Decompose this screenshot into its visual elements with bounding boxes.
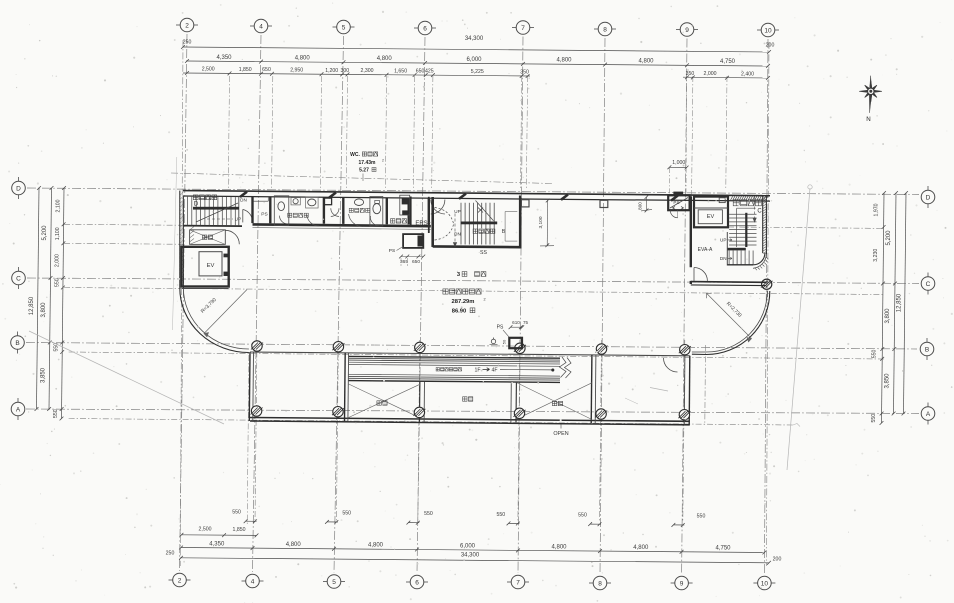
svg-text:5,225: 5,225 xyxy=(471,69,484,75)
svg-text:550: 550 xyxy=(496,512,505,518)
svg-text:B: B xyxy=(925,346,929,353)
svg-text:2: 2 xyxy=(178,577,182,584)
svg-text:3,230: 3,230 xyxy=(873,249,879,262)
svg-text:650: 650 xyxy=(412,259,420,265)
svg-text:D: D xyxy=(926,194,931,201)
svg-text:4,800: 4,800 xyxy=(551,544,567,550)
svg-text:5,200: 5,200 xyxy=(886,230,892,246)
svg-text:6,000: 6,000 xyxy=(466,57,482,63)
svg-text:7: 7 xyxy=(516,579,520,586)
svg-text:8: 8 xyxy=(598,580,602,587)
svg-text:A: A xyxy=(16,406,21,413)
svg-text:350: 350 xyxy=(686,71,695,77)
svg-text:4,350: 4,350 xyxy=(209,541,225,547)
svg-text:7: 7 xyxy=(521,25,525,32)
svg-text:4,350: 4,350 xyxy=(216,55,232,61)
svg-text:10: 10 xyxy=(764,27,772,34)
svg-text:4F: 4F xyxy=(491,367,497,373)
svg-text:34,300: 34,300 xyxy=(461,553,480,559)
svg-text:250: 250 xyxy=(183,40,192,46)
svg-text:550: 550 xyxy=(697,514,706,520)
svg-text:A: A xyxy=(926,411,931,418)
svg-text:550: 550 xyxy=(232,510,241,516)
svg-text:200: 200 xyxy=(773,557,782,563)
svg-text:4,800: 4,800 xyxy=(633,545,649,551)
svg-text:550: 550 xyxy=(342,511,351,517)
svg-text:2: 2 xyxy=(483,298,485,302)
svg-text:3,850: 3,850 xyxy=(884,373,890,389)
svg-text:PS: PS xyxy=(673,200,679,205)
svg-text:2,000: 2,000 xyxy=(704,71,717,77)
svg-text:B: B xyxy=(15,340,19,347)
svg-text:4,800: 4,800 xyxy=(556,58,572,64)
svg-text:650: 650 xyxy=(416,69,425,75)
svg-text:6: 6 xyxy=(415,579,419,586)
svg-text:1,850: 1,850 xyxy=(239,67,252,73)
svg-text:EVA-A: EVA-A xyxy=(698,247,713,253)
svg-text:287.29m: 287.29m xyxy=(452,299,475,305)
svg-text:WC.: WC. xyxy=(350,152,360,158)
svg-text:1,100: 1,100 xyxy=(55,227,61,240)
svg-text:8: 8 xyxy=(603,26,607,33)
svg-text:2,100: 2,100 xyxy=(55,199,61,212)
svg-text:4: 4 xyxy=(259,23,263,30)
svg-text:N: N xyxy=(866,116,870,123)
svg-text:4,800: 4,800 xyxy=(638,58,654,64)
svg-text:OPEN: OPEN xyxy=(553,431,568,437)
svg-text:1,650: 1,650 xyxy=(394,68,407,74)
svg-text:550: 550 xyxy=(872,349,878,358)
svg-text:2: 2 xyxy=(185,22,189,29)
svg-text:DN: DN xyxy=(240,198,247,203)
svg-text:4,800: 4,800 xyxy=(368,543,384,549)
svg-text:300: 300 xyxy=(340,68,349,74)
svg-text:6: 6 xyxy=(423,25,427,32)
svg-text:86.90: 86.90 xyxy=(452,309,467,315)
svg-text:UP: UP xyxy=(454,209,460,214)
svg-text:UP: UP xyxy=(720,238,726,243)
svg-text:C: C xyxy=(926,281,931,288)
svg-text:2,300: 2,300 xyxy=(361,68,374,74)
svg-text:EV: EV xyxy=(707,214,715,220)
svg-text:200: 200 xyxy=(766,43,775,49)
svg-text:3,850: 3,850 xyxy=(40,367,46,383)
svg-text:C: C xyxy=(757,209,762,215)
svg-text:2,000: 2,000 xyxy=(55,254,61,267)
svg-text:EV: EV xyxy=(207,263,215,269)
svg-text:6,000: 6,000 xyxy=(460,544,476,550)
svg-text:2,400: 2,400 xyxy=(741,71,754,77)
svg-text:DN: DN xyxy=(720,256,727,261)
svg-text:4,800: 4,800 xyxy=(286,542,302,548)
svg-text:650: 650 xyxy=(262,67,271,73)
svg-text:1F: 1F xyxy=(474,367,480,373)
svg-text:550: 550 xyxy=(871,414,877,423)
svg-text:D: D xyxy=(194,202,199,208)
svg-text:UP: UP xyxy=(235,217,241,222)
svg-text:1,850: 1,850 xyxy=(233,527,246,533)
svg-text:4,800: 4,800 xyxy=(377,56,393,62)
svg-text:5.27: 5.27 xyxy=(359,168,369,174)
svg-text:34,300: 34,300 xyxy=(465,36,484,42)
svg-text:1,970: 1,970 xyxy=(873,203,879,216)
svg-text:1,200: 1,200 xyxy=(325,68,338,74)
svg-text:12,850: 12,850 xyxy=(29,296,35,315)
svg-text:9: 9 xyxy=(685,27,689,34)
svg-text:ERS: ERS xyxy=(415,221,427,227)
svg-text:550: 550 xyxy=(578,513,587,519)
svg-text:4,750: 4,750 xyxy=(720,59,736,65)
svg-text:3,800: 3,800 xyxy=(885,308,891,324)
svg-text:2,500: 2,500 xyxy=(202,67,215,73)
svg-text:C: C xyxy=(16,275,21,282)
svg-text:550: 550 xyxy=(55,278,61,287)
svg-text:2: 2 xyxy=(382,159,384,163)
svg-text:5: 5 xyxy=(342,24,346,31)
svg-text:250: 250 xyxy=(166,551,175,557)
svg-text:610: 610 xyxy=(512,320,520,325)
svg-text:800: 800 xyxy=(638,202,643,210)
svg-text:4: 4 xyxy=(251,578,255,585)
svg-text:425: 425 xyxy=(425,69,434,75)
svg-text:12,850: 12,850 xyxy=(897,293,903,312)
svg-text:D: D xyxy=(16,185,21,192)
svg-text:5: 5 xyxy=(332,579,336,586)
svg-text:10: 10 xyxy=(761,580,769,587)
svg-text:2,500: 2,500 xyxy=(199,527,212,533)
svg-text:PS: PS xyxy=(261,212,267,218)
svg-text:3,100: 3,100 xyxy=(538,216,544,228)
svg-text:2,950: 2,950 xyxy=(290,68,303,74)
svg-text:SS: SS xyxy=(480,250,487,256)
svg-text:17.43m: 17.43m xyxy=(359,160,377,166)
svg-text:550: 550 xyxy=(424,511,433,517)
svg-text:550: 550 xyxy=(53,409,59,418)
svg-text:4,750: 4,750 xyxy=(715,546,731,552)
svg-text:5,200: 5,200 xyxy=(42,225,48,241)
svg-text:75: 75 xyxy=(523,320,529,325)
svg-text:PS: PS xyxy=(389,248,395,254)
svg-text:9: 9 xyxy=(680,580,684,587)
svg-text:4,800: 4,800 xyxy=(295,56,311,62)
svg-text:350: 350 xyxy=(520,69,529,75)
svg-text:3,800: 3,800 xyxy=(41,302,47,318)
svg-text:50: 50 xyxy=(502,339,507,344)
